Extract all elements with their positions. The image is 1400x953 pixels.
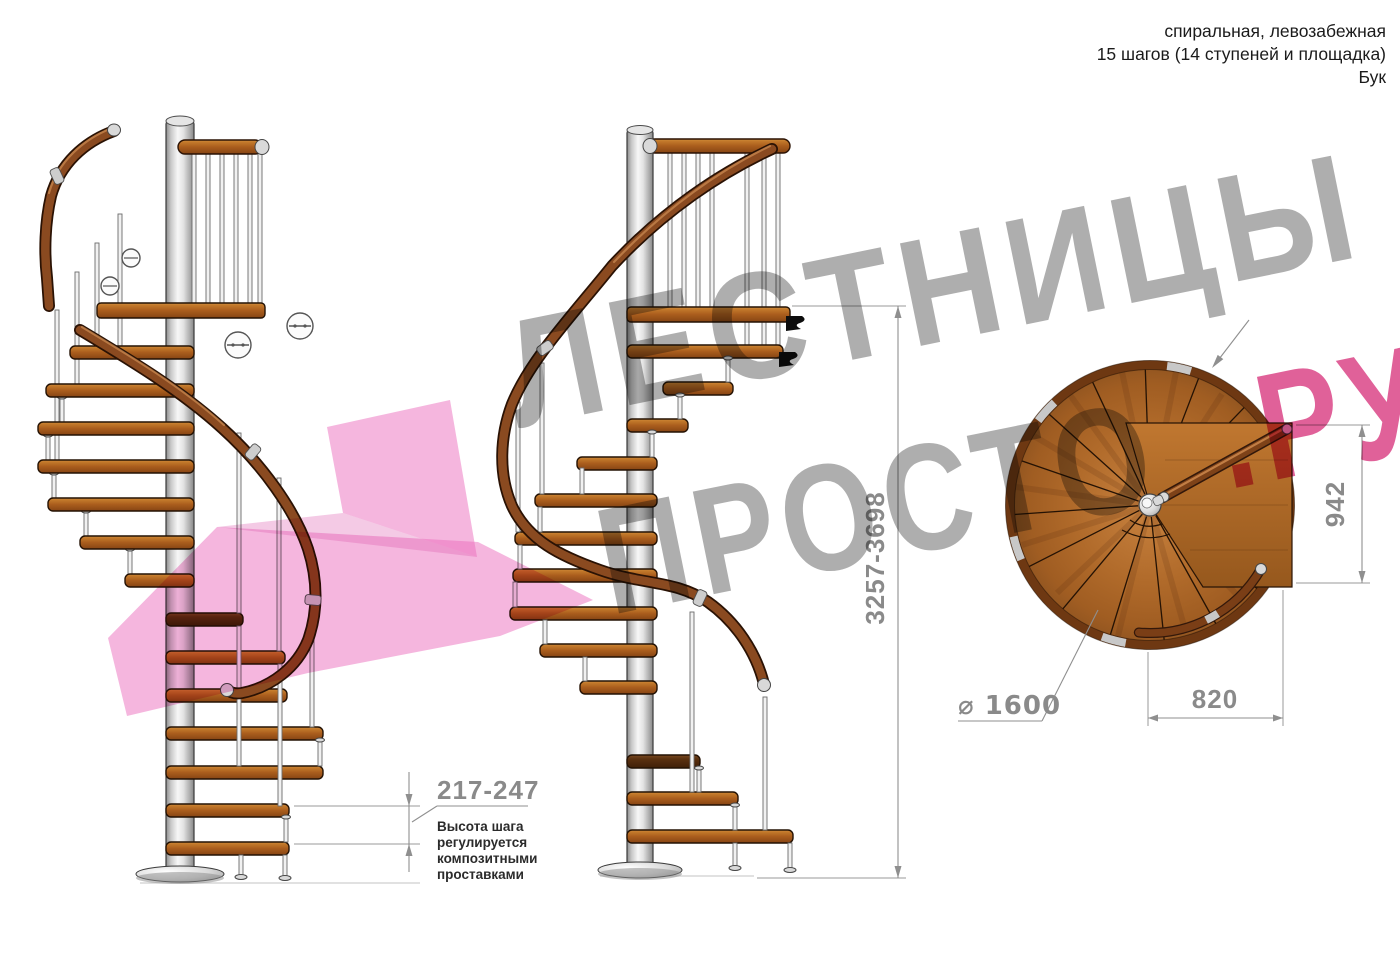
title-line-material: Бук xyxy=(1097,66,1386,89)
drawing-canvas: 3257-3698 942 820 ⌀ 1600 217-247 Высота xyxy=(0,0,1400,953)
watermark-arrow-layer xyxy=(0,0,1400,953)
watermark-arrow-lower xyxy=(108,527,593,716)
title-block: спиральная, левозабежная 15 шагов (14 ст… xyxy=(1097,20,1386,89)
title-line-type: спиральная, левозабежная xyxy=(1097,20,1386,43)
title-line-steps: 15 шагов (14 ступеней и площадка) xyxy=(1097,43,1386,66)
